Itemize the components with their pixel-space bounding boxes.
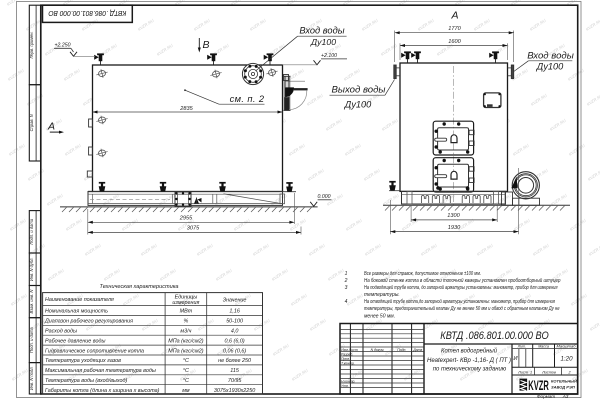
svg-text:КVZR.RU: КVZR.RU (308, 242, 327, 257)
svg-text:2835: 2835 (179, 106, 193, 112)
svg-text:КVZR.RU: КVZR.RU (327, 267, 346, 282)
svg-text:Лит.: Лит. (517, 345, 526, 349)
svg-text:КVZR.RU: КVZR.RU (291, 367, 310, 382)
svg-text:Листов: Листов (541, 370, 556, 374)
svg-text:2: 2 (344, 278, 348, 284)
svg-text:КVZR.RU: КVZR.RU (271, 267, 290, 282)
svg-text:КVZR.RU: КVZR.RU (289, 217, 308, 232)
svg-text:50-100: 50-100 (226, 319, 243, 325)
svg-text:N докум.: N докум. (371, 348, 385, 352)
svg-text:Перв. примен.: Перв. примен. (29, 31, 34, 58)
svg-text:Масштаб: Масштаб (557, 345, 577, 349)
svg-text:МПа (кгс/см2): МПа (кгс/см2) (168, 348, 203, 354)
svg-text:Рабочее давление воды: Рабочее давление воды (45, 338, 105, 344)
svg-text:°С: °С (183, 368, 189, 374)
svg-text:КVZR.RU: КVZR.RU (272, 342, 291, 357)
svg-text:КVZR.RU: КVZR.RU (27, 167, 46, 182)
svg-text:измерения: измерения (172, 300, 199, 306)
svg-text:Все размеры для справок, допус: Все размеры для справок, допустимое откл… (364, 271, 481, 277)
svg-text:А3: А3 (562, 394, 569, 399)
svg-text:Гидравлическое сопротивление к: Гидравлическое сопротивление котла (45, 348, 144, 354)
svg-text:МПа (кгс/см2): МПа (кгс/см2) (168, 338, 203, 344)
svg-text:4: 4 (345, 299, 348, 305)
svg-text:КVZR.RU: КVZR.RU (325, 117, 344, 132)
svg-text:KVZR: KVZR (528, 378, 549, 393)
svg-text:КVZR.RU: КVZR.RU (47, 267, 66, 282)
svg-text:КVZR.RU: КVZR.RU (381, 117, 400, 132)
svg-text:КVZR.RU: КVZR.RU (156, 42, 175, 57)
svg-text:КVZR.RU: КVZR.RU (529, 17, 548, 32)
svg-text:4,0: 4,0 (231, 329, 239, 335)
svg-text:1: 1 (345, 271, 348, 277)
svg-text:КVZR.RU: КVZR.RU (309, 317, 328, 332)
svg-text:Номинальная мощность: Номинальная мощность (45, 309, 108, 315)
svg-text:Значение: Значение (223, 297, 247, 303)
svg-text:Вход воды: Вход воды (527, 51, 574, 62)
svg-text:КVZR.RU: КVZR.RU (567, 67, 586, 82)
svg-text:Взам. инв. N: Взам. инв. N (29, 290, 34, 314)
svg-text:КVZR.RU: КVZR.RU (532, 242, 551, 257)
svg-text:КVZR.RU: КVZR.RU (476, 242, 495, 257)
svg-text:КVZR.RU: КVZR.RU (196, 242, 215, 257)
svg-text:КVZR.RU: КVZR.RU (588, 242, 600, 257)
svg-text:КVZR.RU: КVZR.RU (81, 17, 100, 32)
svg-text:КVZR.RU: КVZR.RU (63, 67, 82, 82)
svg-text:И: И (513, 356, 518, 362)
svg-text:КVZR.RU: КVZR.RU (64, 142, 83, 157)
svg-text:КVZR.RU: КVZR.RU (252, 242, 271, 257)
svg-text:КVZR.RU: КVZR.RU (46, 192, 65, 207)
svg-text:КVZR.RU: КVZR.RU (345, 217, 364, 232)
svg-text:+2.250: +2.250 (54, 43, 70, 49)
svg-text:Heatexpert- КВр -1,16- Д ( ПТ: Heatexpert- КВр -1,16- Д ( ПТ ) (427, 357, 511, 364)
svg-text:Максимальная рабочая температу: Максимальная рабочая температура воды (45, 368, 156, 374)
svg-text:температуры.: температуры. (364, 292, 400, 298)
svg-text:3075х1930х2250: 3075х1930х2250 (214, 388, 255, 394)
svg-text:%: % (184, 319, 189, 325)
svg-text:см. п. 2: см. п. 2 (230, 94, 265, 104)
svg-text:1300: 1300 (447, 213, 460, 219)
svg-text:КVZR.RU: КVZR.RU (11, 367, 30, 382)
svg-text:КVZR.RU: КVZR.RU (65, 217, 84, 232)
svg-text:КVZR.RU: КVZR.RU (307, 167, 326, 182)
svg-text:КVZR.RU: КVZR.RU (550, 192, 569, 207)
svg-text:не более 250: не более 250 (218, 358, 251, 364)
svg-text:КVZR.RU: КVZR.RU (215, 267, 234, 282)
svg-text:На подводящей трубе котла, д: На подводящей трубе котла, до запорной а… (364, 284, 558, 291)
svg-text:менее 50 мм.: менее 50 мм. (364, 313, 395, 319)
svg-text:КVZR.RU: КVZR.RU (361, 17, 380, 32)
svg-text:На отводящей трубе котла,до за: На отводящей трубе котла,до запорной арм… (364, 298, 555, 305)
svg-text:Масса: Масса (538, 345, 549, 349)
svg-text:Справ. N: Справ. N (29, 114, 34, 131)
svg-text:КVZR.RU: КVZR.RU (530, 92, 549, 107)
svg-text:Лист: Лист (517, 370, 528, 374)
svg-text:КVZR.RU: КVZR.RU (121, 217, 140, 232)
svg-text:Н.контр.: Н.контр. (341, 379, 355, 383)
svg-text:КОТЕЛЬНЫЙ: КОТЕЛЬНЫЙ (551, 379, 577, 384)
svg-text:Выход воды: Выход воды (332, 84, 386, 95)
svg-text:2: 2 (567, 370, 571, 374)
svg-text:1:20: 1:20 (560, 356, 573, 363)
svg-text:КVZR.RU: КVZR.RU (473, 17, 492, 32)
svg-text:мм: мм (182, 388, 190, 394)
svg-text:КVZR.RU: КVZR.RU (380, 42, 399, 57)
svg-text:Подп. и дата: Подп. и дата (29, 327, 34, 353)
svg-text:КVZR.RU: КVZR.RU (512, 142, 531, 157)
svg-text:КVZR.RU: КVZR.RU (570, 292, 589, 307)
svg-text:КВТД .086.801.00.000 ВО: КВТД .086.801.00.000 ВО (48, 9, 126, 18)
svg-text:КVZR.RU: КVZR.RU (84, 242, 103, 257)
svg-text:Т.контр.: Т.контр. (341, 361, 355, 365)
svg-text:2955: 2955 (179, 216, 193, 222)
svg-text:КVZR.RU: КVZR.RU (140, 242, 159, 257)
svg-text:КVZR.RU: КVZR.RU (420, 242, 439, 257)
svg-text:КVZR.RU: КVZR.RU (10, 292, 29, 307)
svg-text:температуры, предохранительный: температуры, предохранительный клапан Ду… (364, 305, 560, 312)
svg-text:Техническая характеристика: Техническая характеристика (100, 284, 179, 290)
svg-text:3: 3 (345, 285, 348, 291)
svg-text:Изм.Лист: Изм.Лист (341, 348, 358, 352)
svg-text:Температура уходящих газов: Температура уходящих газов (45, 358, 121, 364)
svg-text:КVZR.RU: КVZR.RU (141, 317, 160, 332)
svg-text:Утв.: Утв. (341, 384, 349, 388)
svg-text:B: B (203, 39, 210, 51)
svg-text:Расход воды: Расход воды (45, 329, 77, 335)
svg-text:КVZR.RU: КVZR.RU (6, 0, 25, 7)
svg-text:КVZR.RU: КVZR.RU (193, 17, 212, 32)
svg-text:1930: 1930 (448, 225, 461, 231)
svg-text:КVZR.RU: КVZR.RU (344, 142, 363, 157)
svg-text:КVZR.RU: КVZR.RU (343, 67, 362, 82)
svg-text:КVZR.RU: КVZR.RU (122, 292, 141, 307)
svg-text:м3/ч: м3/ч (180, 329, 191, 335)
svg-text:Вход воды: Вход воды (299, 26, 344, 36)
svg-text:МВт: МВт (180, 309, 193, 315)
svg-text:Ду100: Ду100 (536, 62, 564, 72)
svg-text:0,6 (6,0): 0,6 (6,0) (225, 338, 245, 344)
svg-text:КVZR.RU: КVZR.RU (585, 17, 600, 32)
svg-text:Формат: Формат (537, 394, 555, 399)
svg-text:КVZR.RU: КVZR.RU (382, 192, 401, 207)
svg-text:A: A (47, 121, 55, 133)
svg-text:Подп.: Подп. (397, 348, 406, 352)
svg-text:0,06 (0,6): 0,06 (0,6) (223, 348, 246, 354)
svg-text:Котел водогрейный: Котел водогрейный (441, 347, 498, 354)
svg-text:Температура воды (вход/выход): Температура воды (вход/выход) (45, 378, 128, 384)
svg-text:°С: °С (183, 358, 189, 364)
svg-text:КВТД .086.801.00.000 ВО: КВТД .086.801.00.000 ВО (440, 330, 549, 342)
svg-text:Пров.: Пров. (341, 357, 350, 361)
svg-text:КVZR.RU: КVZR.RU (26, 92, 45, 107)
svg-text:КVZR.RU: КVZR.RU (549, 117, 568, 132)
svg-text:1: 1 (530, 370, 532, 374)
svg-text:°С: °С (183, 378, 189, 384)
svg-text:Ду100: Ду100 (344, 100, 372, 110)
svg-text:КVZR.RU: КVZR.RU (364, 242, 383, 257)
svg-text:КVZR.RU: КVZR.RU (363, 167, 382, 182)
svg-text:Ду100: Ду100 (310, 37, 336, 47)
svg-text:1600: 1600 (448, 39, 461, 45)
svg-text:0.000: 0.000 (318, 194, 331, 200)
svg-text:Габариты котла (длина х ширина: Габариты котла (длина х ширина х высота) (45, 388, 160, 394)
svg-text:70/95: 70/95 (228, 378, 242, 384)
svg-text:1770: 1770 (448, 26, 461, 32)
svg-text:1,16: 1,16 (229, 309, 240, 315)
svg-text:Дата: Дата (412, 348, 422, 352)
svg-text:КVZR.RU: КVZR.RU (249, 17, 268, 32)
svg-text:КVZR.RU: КVZR.RU (9, 217, 28, 232)
svg-text:115: 115 (230, 368, 240, 374)
svg-text:КVZR.RU: КVZR.RU (587, 167, 600, 182)
svg-text:КVZR.RU: КVZR.RU (159, 267, 178, 282)
svg-text:A: A (450, 9, 458, 21)
svg-text:КVZR.RU: КVZR.RU (288, 142, 307, 157)
svg-text:Разраб.: Разраб. (341, 352, 353, 356)
svg-text:КVZR.RU: КVZR.RU (197, 317, 216, 332)
svg-text:Подп. и дата: Подп. и дата (29, 218, 34, 244)
svg-text:На боковой стенке котла в обла: На боковой стенке котла в области топочн… (364, 277, 561, 284)
svg-text:КVZR.RU: КVZR.RU (103, 267, 122, 282)
svg-text:КVZR.RU: КVZR.RU (401, 217, 420, 232)
svg-text:ЗАВОД РЭП: ЗАВОД РЭП (551, 384, 575, 389)
svg-text:Инв. N дубл.: Инв. N дубл. (29, 257, 34, 281)
svg-text:КVZR.RU: КVZR.RU (513, 217, 532, 232)
svg-text:КVZR.RU: КVZR.RU (8, 142, 27, 157)
svg-text:КVZR.RU: КVZR.RU (290, 292, 309, 307)
svg-text:КVZR.RU: КVZR.RU (233, 217, 252, 232)
svg-text:КVZR.RU: КVZR.RU (586, 92, 600, 107)
svg-text:Диапазон рабочего регулировани: Диапазон рабочего регулирования (44, 319, 133, 325)
svg-text:КVZR.RU: КVZR.RU (346, 292, 365, 307)
svg-text:по техническому заданию: по техническому заданию (433, 366, 507, 373)
svg-text:3075: 3075 (187, 226, 200, 232)
svg-text:КVZR.RU: КVZR.RU (417, 17, 436, 32)
svg-text:+2.100: +2.100 (321, 53, 337, 59)
svg-text:КVZR.RU: КVZR.RU (137, 17, 156, 32)
svg-text:КVZR.RU: КVZR.RU (306, 92, 325, 107)
svg-text:Инв. N подл.: Инв. N подл. (29, 366, 34, 390)
svg-text:КVZR.RU: КVZR.RU (589, 317, 600, 332)
svg-text:Наименование показателя: Наименование показателя (45, 297, 114, 303)
